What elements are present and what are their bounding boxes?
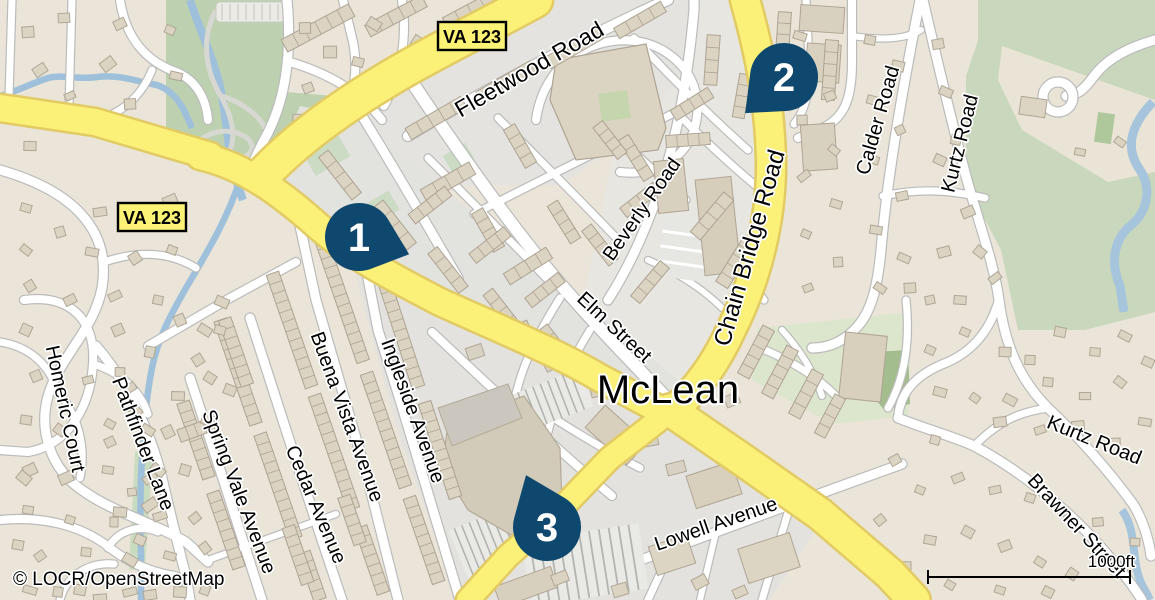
svg-text:3: 3	[536, 506, 558, 550]
svg-text:VA 123: VA 123	[443, 27, 501, 47]
svg-text:© LOCR/OpenStreetMap: © LOCR/OpenStreetMap	[13, 569, 224, 590]
svg-text:2: 2	[773, 56, 795, 100]
svg-text:1000ft: 1000ft	[1088, 552, 1136, 571]
svg-text:McLean: McLean	[597, 368, 739, 412]
svg-text:VA 123: VA 123	[123, 208, 181, 228]
svg-text:1: 1	[348, 216, 370, 260]
